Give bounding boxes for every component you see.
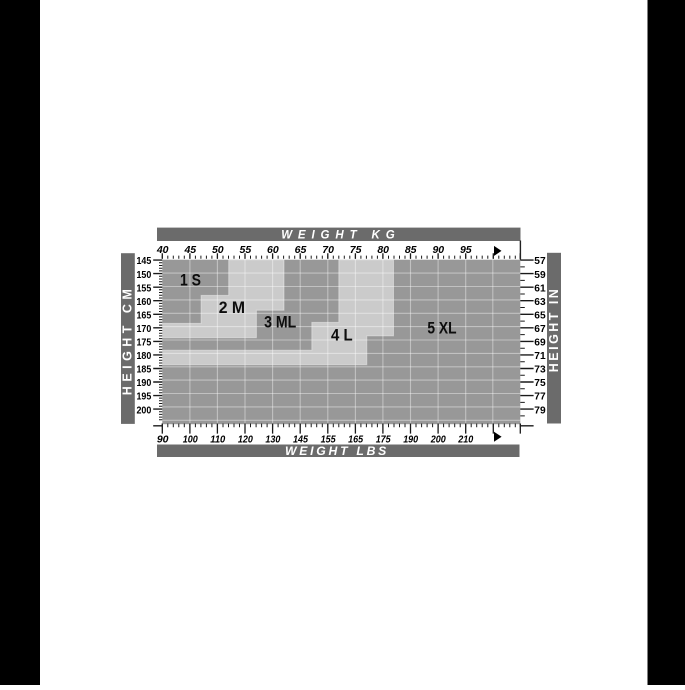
svg-text:WEIGHT KG: WEIGHT KG (281, 229, 395, 241)
svg-text:3 ML: 3 ML (264, 314, 296, 332)
svg-text:185: 185 (137, 365, 152, 376)
svg-text:155: 155 (137, 283, 152, 294)
svg-text:200: 200 (430, 433, 446, 445)
svg-text:90: 90 (157, 433, 169, 445)
svg-text:57: 57 (534, 256, 546, 267)
svg-text:195: 195 (137, 392, 152, 403)
svg-text:71: 71 (534, 351, 546, 362)
svg-text:150: 150 (137, 270, 152, 281)
svg-text:5 XL: 5 XL (427, 319, 456, 337)
svg-text:210: 210 (457, 433, 473, 445)
svg-text:170: 170 (137, 324, 152, 335)
svg-text:130: 130 (265, 433, 280, 445)
svg-text:67: 67 (534, 324, 546, 335)
svg-text:165: 165 (137, 310, 152, 321)
svg-text:77: 77 (534, 392, 546, 403)
svg-text:100: 100 (183, 433, 198, 445)
svg-text:175: 175 (137, 338, 152, 349)
svg-text:59: 59 (534, 270, 546, 281)
svg-text:2 M: 2 M (219, 299, 245, 317)
svg-text:1 S: 1 S (180, 271, 201, 289)
svg-text:160: 160 (137, 297, 152, 308)
svg-text:63: 63 (534, 297, 546, 308)
svg-text:65: 65 (534, 310, 546, 321)
svg-text:110: 110 (210, 433, 225, 445)
svg-text:200: 200 (137, 405, 152, 416)
svg-text:79: 79 (534, 405, 546, 416)
svg-text:HEIGHT IN: HEIGHT IN (547, 289, 561, 372)
svg-text:69: 69 (534, 338, 546, 349)
svg-text:61: 61 (534, 283, 546, 294)
svg-text:HEIGHT CM: HEIGHT CM (121, 289, 135, 395)
svg-text:120: 120 (238, 433, 253, 445)
svg-text:190: 190 (403, 433, 418, 445)
svg-text:180: 180 (137, 351, 152, 362)
svg-text:WEIGHT LBS: WEIGHT LBS (285, 444, 386, 458)
svg-text:4 L: 4 L (331, 327, 353, 345)
svg-text:73: 73 (534, 365, 546, 376)
svg-text:145: 145 (137, 256, 152, 267)
svg-text:75: 75 (534, 378, 546, 389)
svg-text:190: 190 (137, 378, 152, 389)
